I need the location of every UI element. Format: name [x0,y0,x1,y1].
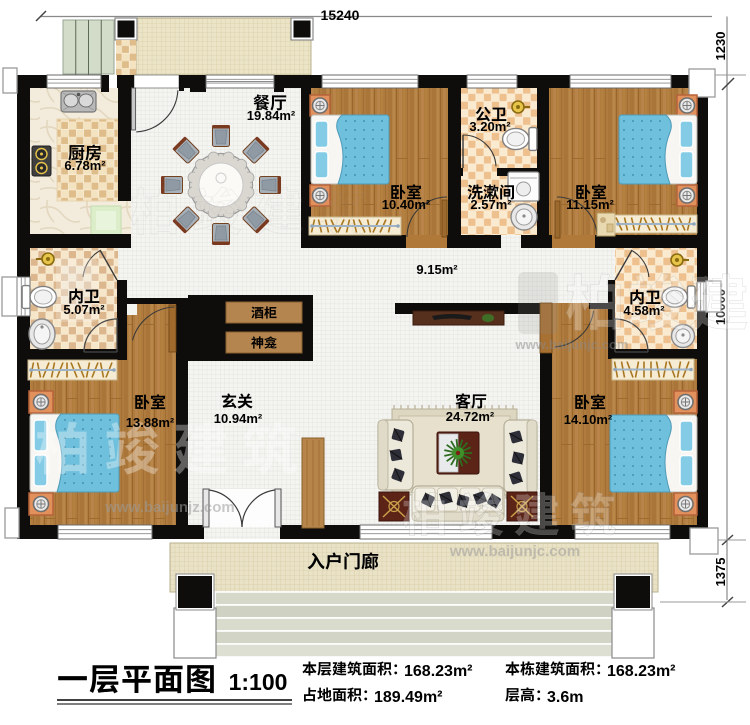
svg-text:3.20m²: 3.20m² [469,119,511,134]
svg-text:5.07m²: 5.07m² [63,302,105,317]
svg-text:13.88m²: 13.88m² [126,415,175,430]
svg-text:6.78m²: 6.78m² [64,158,106,173]
svg-text:www.baijunjc.com: www.baijunjc.com [449,543,580,560]
svg-text:168.23m²: 168.23m² [404,663,473,680]
svg-text:3.6m: 3.6m [547,689,583,706]
svg-text:11.15m²: 11.15m² [566,197,614,212]
svg-text:2.57m²: 2.57m² [470,197,512,212]
svg-text:189.49m²: 189.49m² [374,689,443,706]
svg-text:1375: 1375 [713,558,728,587]
svg-text:14.10m²: 14.10m² [564,412,613,427]
svg-text:www.baijunjz.com: www.baijunjz.com [104,499,234,516]
svg-text:1230: 1230 [713,32,728,61]
svg-text:1:100: 1:100 [229,669,288,695]
svg-text:19.84m²: 19.84m² [247,108,296,123]
svg-text:9.15m²: 9.15m² [416,262,458,277]
svg-text:4.58m²: 4.58m² [623,303,665,318]
svg-text:168.23m²: 168.23m² [607,663,676,680]
svg-text:10.40m²: 10.40m² [382,197,431,212]
svg-text:www.baijunjc.com: www.baijunjc.com [515,337,629,352]
svg-text:10.94m²: 10.94m² [214,411,263,426]
svg-text:24.72m²: 24.72m² [446,409,495,424]
svg-text:15240: 15240 [321,7,360,23]
